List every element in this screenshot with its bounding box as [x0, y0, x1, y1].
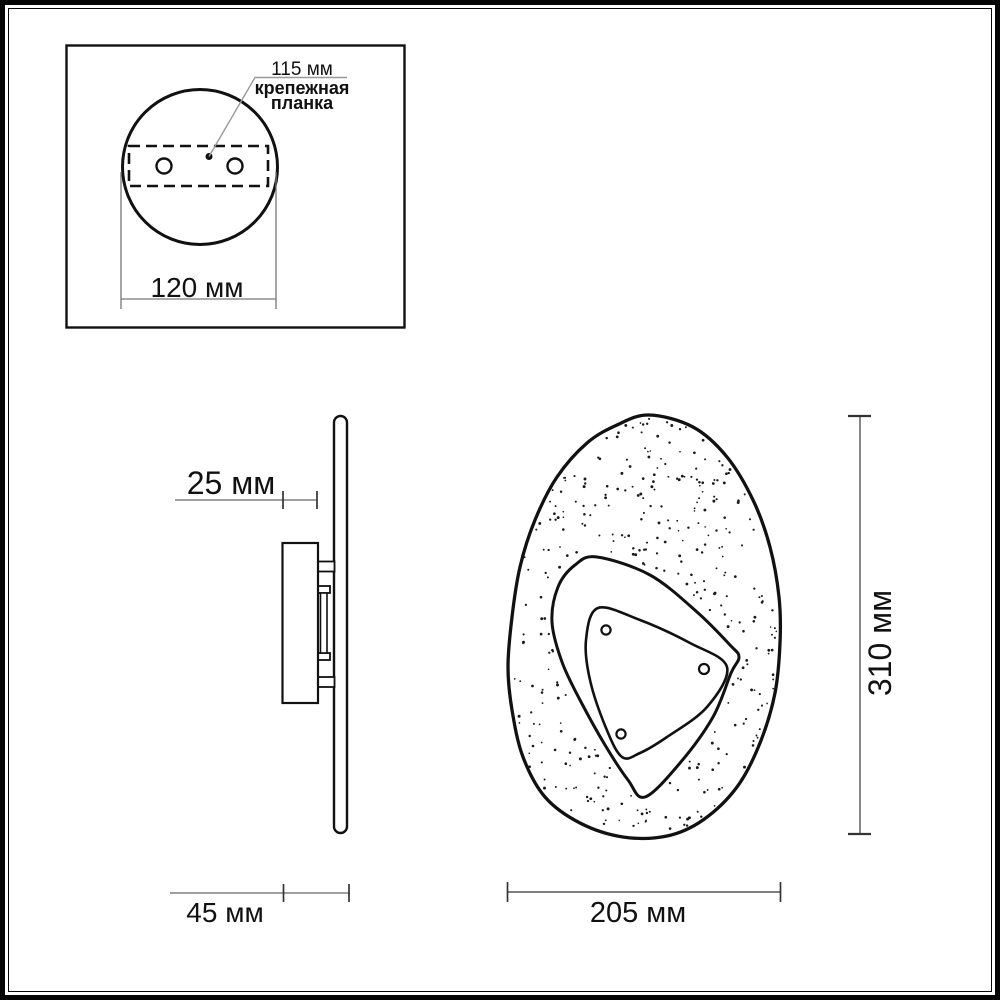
- stipple-dot: [632, 553, 635, 556]
- stipple-dot: [679, 428, 681, 430]
- stipple-dot: [739, 621, 741, 623]
- stipple-dot: [646, 423, 648, 425]
- stipple-dot: [575, 501, 577, 503]
- stipple-dot: [543, 787, 546, 790]
- stipple-dot: [734, 724, 737, 727]
- stipple-dot: [756, 735, 758, 737]
- stipple-dot: [560, 730, 563, 733]
- stipple-dot: [757, 737, 759, 739]
- stipple-dot: [528, 735, 530, 737]
- stipple-dot: [569, 751, 571, 753]
- stipple-dot: [774, 637, 776, 639]
- stipple-dot: [612, 534, 614, 536]
- stipple-dot: [718, 547, 720, 549]
- stipple-dot: [718, 788, 721, 791]
- stipple-dot: [742, 666, 745, 669]
- stipple-dot: [564, 762, 567, 765]
- plate-width-label: 120 мм: [122, 272, 272, 304]
- stipple-dot: [584, 747, 586, 749]
- stipple-dot: [724, 572, 726, 574]
- stipple-dot: [772, 688, 774, 690]
- stipple-dot: [594, 504, 596, 506]
- stipple-dot: [549, 501, 551, 503]
- stipple-dot: [772, 678, 774, 680]
- stipple-dot: [696, 478, 698, 480]
- stipple-dot: [703, 580, 705, 582]
- stipple-dot: [626, 459, 628, 461]
- stipple-dot: [573, 787, 575, 789]
- stipple-dot: [703, 509, 706, 512]
- stipple-dot: [694, 582, 696, 584]
- stipple-dot: [753, 587, 755, 589]
- stipple-dot: [718, 460, 720, 462]
- stipple-dot: [555, 786, 557, 788]
- stipple-dot: [540, 596, 543, 599]
- stipple-dot: [709, 609, 711, 611]
- stipple-dot: [728, 531, 730, 533]
- stipple-dot: [519, 680, 521, 682]
- stipple-dot: [743, 766, 746, 769]
- stipple-dot: [535, 529, 537, 531]
- stipple-dot: [525, 604, 527, 606]
- stipple-dot: [588, 755, 591, 758]
- stipple-dot: [704, 589, 706, 591]
- stipple-dot: [670, 424, 673, 427]
- stipple-dot: [540, 617, 543, 620]
- stipple-dot: [584, 482, 586, 484]
- stipple-dot: [749, 518, 751, 520]
- stipple-dot: [682, 540, 684, 542]
- stipple-dot: [531, 685, 534, 688]
- stipple-dot: [647, 451, 649, 453]
- front-screw-hole-top: [601, 625, 610, 634]
- stipple-dot: [630, 795, 632, 797]
- stipple-dot: [678, 530, 680, 532]
- stipple-dot: [575, 551, 578, 554]
- stipple-dot: [726, 595, 728, 597]
- stipple-dot: [694, 510, 696, 512]
- stipple-dot: [702, 439, 705, 442]
- stipple-dot: [543, 617, 546, 620]
- stipple-dot: [640, 422, 642, 424]
- stipple-dot: [624, 424, 627, 427]
- stipple-dot: [688, 816, 691, 819]
- stipple-dot: [685, 583, 688, 586]
- stipple-dot: [644, 564, 646, 566]
- stipple-dot: [694, 507, 696, 509]
- stipple-dot: [697, 522, 699, 524]
- stipple-dot: [746, 663, 748, 665]
- stipple-dot: [731, 620, 733, 622]
- stipple-dot: [690, 476, 692, 478]
- stipple-dot: [637, 809, 639, 811]
- stipple-dot: [723, 516, 726, 519]
- stipple-dot: [548, 652, 550, 654]
- stipple-dot: [589, 514, 591, 516]
- stipple-dot: [750, 688, 753, 691]
- stipple-dot: [704, 458, 706, 460]
- stipple-dot: [554, 519, 556, 521]
- stipple-dot: [606, 485, 609, 488]
- stipple-dot: [650, 450, 652, 452]
- stipple-dot: [707, 789, 709, 791]
- stipple-dot: [646, 542, 648, 544]
- stipple-dot: [678, 478, 681, 481]
- stipple-dot: [604, 496, 607, 499]
- dimension-drawing: 115 мм крепежная планка 120 мм 25 мм 45 …: [0, 0, 1000, 1000]
- stipple-dot: [669, 782, 671, 784]
- mounting-bracket-label-line2: планка: [227, 96, 377, 111]
- stipple-dot: [704, 543, 706, 545]
- stipple-dot: [632, 427, 634, 429]
- stipple-dot: [768, 653, 770, 655]
- stipple-dot: [649, 505, 651, 507]
- stipple-dot: [551, 649, 554, 652]
- stipple-dot: [711, 768, 714, 771]
- stipple-dot: [624, 489, 626, 491]
- stipple-dot: [587, 800, 589, 802]
- stipple-dot: [656, 435, 659, 438]
- stipple-dot: [734, 575, 737, 578]
- stipple-dot: [708, 535, 710, 537]
- stipple-dot: [548, 668, 550, 670]
- front-screw-hole-bottom: [616, 729, 625, 738]
- stipple-dot: [564, 480, 566, 482]
- stipple-dot: [770, 626, 772, 628]
- stipple-dot: [679, 816, 681, 818]
- stipple-dot: [745, 718, 747, 720]
- stipple-dot: [721, 787, 723, 789]
- stipple-dot: [753, 529, 755, 531]
- driver-box-side-profile: [283, 543, 319, 703]
- stipple-dot: [514, 678, 516, 680]
- stipple-dot: [559, 546, 561, 548]
- stipple-dot: [519, 722, 521, 724]
- stipple-dot: [716, 498, 718, 500]
- stipple-dot: [660, 505, 662, 507]
- stipple-dot: [557, 516, 560, 519]
- stipple-dot: [696, 591, 699, 594]
- stipple-dot: [712, 500, 715, 503]
- stipple-dot: [584, 478, 587, 481]
- stipple-dot: [714, 805, 716, 807]
- stipple-dot: [608, 505, 610, 507]
- stipple-dot: [650, 485, 653, 488]
- stipple-dot: [594, 749, 596, 751]
- width-label: 205 мм: [563, 897, 713, 930]
- mounting-bracket-label: крепежная планка: [227, 81, 377, 111]
- stipple-dot: [655, 567, 658, 570]
- stipple-dot: [761, 595, 763, 597]
- stipple-dot: [698, 497, 700, 499]
- stipple-dot: [632, 825, 634, 827]
- stipple-dot: [563, 516, 565, 518]
- stipple-dot: [728, 472, 730, 474]
- stipple-dot: [553, 512, 556, 515]
- stipple-dot: [681, 475, 684, 478]
- stipple-dot: [667, 519, 669, 521]
- stipple-dot: [560, 722, 562, 724]
- stipple-dot: [699, 485, 701, 487]
- stipple-dot: [640, 518, 643, 521]
- stipple-dot: [680, 560, 682, 562]
- height-label: 310 мм: [862, 568, 902, 718]
- stipple-dot: [676, 520, 678, 522]
- stipple-dot: [666, 421, 668, 423]
- stipple-dot: [583, 485, 586, 488]
- stipple-dot: [539, 724, 541, 726]
- stipple-dot: [583, 513, 586, 516]
- total-depth-label: 45 мм: [150, 897, 300, 929]
- plate-depth-label: 25 мм: [156, 465, 306, 502]
- stipple-dot: [722, 556, 724, 558]
- stipple-dot: [774, 627, 776, 629]
- stipple-dot: [703, 791, 706, 794]
- stipple-dot: [637, 494, 640, 497]
- stipple-dot: [562, 528, 565, 531]
- stipple-dot: [647, 456, 650, 459]
- stipple-dot: [711, 742, 714, 745]
- stipple-dot: [641, 813, 644, 816]
- bracket-stem: [321, 593, 328, 653]
- stipple-dot: [679, 451, 681, 453]
- stipple-dot: [653, 473, 656, 476]
- stipple-dot: [713, 592, 716, 595]
- stipple-dot: [603, 776, 605, 778]
- stipple-dot: [759, 693, 761, 695]
- stipple-dot: [771, 609, 773, 611]
- stipple-dot: [713, 479, 715, 481]
- stipple-dot: [528, 765, 531, 768]
- stipple-dot: [697, 811, 699, 813]
- stipple-dot: [663, 570, 665, 572]
- stipple-dot: [695, 467, 697, 469]
- stipple-dot: [542, 689, 544, 691]
- stipple-dot: [701, 551, 703, 553]
- stipple-dot: [669, 827, 672, 830]
- stipple-dot: [629, 465, 632, 468]
- stipple-dot: [727, 625, 730, 628]
- stipple-dot: [677, 573, 679, 575]
- stipple-dot: [524, 556, 526, 558]
- stipple-dot: [677, 789, 679, 791]
- stipple-dot: [702, 491, 704, 493]
- stipple-dot: [532, 745, 535, 748]
- stipple-dot: [743, 722, 745, 724]
- stipple-dot: [565, 788, 567, 790]
- stipple-dot: [617, 431, 620, 434]
- stipple-dot: [597, 456, 599, 458]
- stipple-dot: [586, 796, 588, 798]
- stipple-dot: [771, 634, 773, 636]
- stipple-dot: [643, 549, 645, 551]
- stipple-dot: [632, 486, 634, 488]
- stipple-dot: [664, 816, 667, 819]
- stipple-dot: [593, 801, 595, 803]
- stipple-dot: [609, 767, 611, 769]
- stipple-dot: [716, 567, 718, 569]
- stipple-dot: [641, 431, 643, 433]
- stipple-dot: [542, 702, 544, 704]
- stipple-dot: [570, 809, 572, 811]
- stipple-dot: [656, 467, 658, 469]
- stipple-dot: [543, 549, 545, 551]
- stipple-dot: [603, 823, 605, 825]
- stipple-dot: [645, 820, 647, 822]
- stipple-dot: [689, 761, 691, 763]
- stipple-dot: [637, 822, 639, 824]
- stipple-dot: [741, 544, 743, 546]
- stipple-dot: [569, 765, 571, 767]
- stipple-dot: [660, 458, 662, 460]
- stipple-dot: [658, 521, 661, 524]
- stipple-dot: [684, 476, 686, 478]
- stipple-dot: [721, 464, 723, 466]
- stipple-dot: [566, 554, 569, 557]
- stipple-dot: [686, 824, 688, 826]
- stipple-dot: [621, 534, 623, 536]
- stipple-dot: [624, 536, 626, 538]
- stipple-dot: [642, 423, 644, 425]
- stipple-dot: [547, 549, 549, 551]
- stipple-dot: [696, 766, 699, 769]
- stipple-dot: [704, 526, 706, 528]
- stipple-dot: [530, 711, 532, 713]
- stipple-dot: [597, 787, 599, 789]
- stipple-dot: [687, 526, 689, 528]
- stipple-dot: [541, 742, 543, 744]
- stipple-dot: [667, 476, 669, 478]
- stipple-dot: [668, 527, 670, 529]
- stipple-dot: [740, 678, 742, 680]
- stipple-dot: [556, 681, 558, 683]
- stipple-dot: [757, 709, 759, 711]
- stipple-dot: [565, 694, 567, 696]
- stipple-dot: [742, 630, 745, 633]
- stipple-dot: [752, 740, 754, 742]
- stipple-dot: [732, 683, 735, 686]
- stipple-dot: [727, 702, 729, 704]
- stipple-dot: [595, 755, 597, 757]
- stipple-dot: [616, 488, 619, 491]
- stipple-dot: [755, 647, 757, 649]
- stipple-dot: [745, 659, 748, 662]
- stipple-dot: [683, 824, 685, 826]
- stipple-dot: [605, 437, 607, 439]
- stipple-dot: [618, 820, 620, 822]
- stipple-dot: [549, 518, 551, 520]
- stipple-dot: [616, 436, 619, 439]
- stipple-dot: [715, 529, 717, 531]
- stipple-dot: [523, 633, 525, 635]
- stipple-dot: [557, 697, 560, 700]
- stipple-dot: [664, 463, 666, 465]
- stipple-dot: [697, 763, 700, 766]
- screw-hole-left: [157, 159, 172, 174]
- glass-panel-side-profile: [334, 416, 347, 833]
- stipple-dot: [656, 552, 658, 554]
- stipple-dot: [723, 574, 725, 576]
- stipple-dot: [518, 715, 521, 718]
- stipple-dot: [668, 441, 670, 443]
- stipple-dot: [639, 493, 642, 496]
- stipple-dot: [573, 738, 576, 741]
- stipple-dot: [544, 779, 546, 781]
- stipple-dot: [547, 576, 549, 578]
- stipple-dot: [645, 808, 647, 810]
- stipple-dot: [772, 673, 775, 676]
- stipple-dot: [602, 809, 604, 811]
- stipple-dot: [527, 569, 529, 571]
- stipple-dot: [744, 493, 746, 495]
- stipple-dot: [713, 496, 715, 498]
- stipple-dot: [649, 811, 651, 813]
- stipple-dot: [541, 761, 543, 763]
- stipple-dot: [538, 522, 541, 525]
- stipple-dot: [528, 752, 530, 754]
- stipple-dot: [627, 534, 630, 537]
- stipple-dot: [644, 447, 646, 449]
- stipple-dot: [634, 553, 637, 556]
- stipple-dot: [541, 691, 544, 694]
- stipple-dot: [693, 451, 696, 454]
- stipple-dot: [701, 481, 704, 484]
- stipple-dot: [540, 633, 543, 636]
- front-view: [507, 415, 871, 902]
- stipple-dot: [700, 597, 702, 599]
- stipple-dot: [573, 475, 575, 477]
- stipple-dot: [721, 546, 723, 548]
- stipple-dot: [758, 596, 760, 598]
- stipple-dot: [712, 482, 715, 485]
- stipple-dot: [714, 731, 716, 733]
- stipple-dot: [767, 649, 770, 652]
- stipple-dot: [598, 534, 600, 536]
- stipple-dot: [642, 477, 645, 480]
- stipple-dot: [556, 684, 559, 687]
- stipple-dot: [533, 723, 535, 725]
- stipple-dot: [602, 795, 604, 797]
- stipple-dot: [720, 604, 722, 606]
- stipple-dot: [761, 601, 764, 604]
- stipple-dot: [605, 789, 607, 791]
- stipple-dot: [729, 468, 732, 471]
- stipple-dot: [548, 633, 550, 635]
- stipple-dot: [558, 566, 561, 569]
- stipple-dot: [700, 815, 702, 817]
- stipple-dot: [737, 499, 740, 502]
- stipple-dot: [753, 620, 756, 623]
- stipple-dot: [652, 480, 655, 483]
- stipple-dot: [604, 494, 606, 496]
- stipple-dot: [560, 490, 562, 492]
- stipple-dot: [605, 819, 607, 821]
- stipple-dot: [522, 642, 524, 644]
- standoff-bottom: [318, 677, 335, 687]
- stipple-dot: [724, 613, 726, 615]
- stipple-dot: [726, 753, 728, 755]
- stipple-dot: [696, 501, 698, 503]
- stipple-dot: [752, 744, 755, 747]
- stipple-dot: [606, 776, 608, 778]
- stipple-dot: [582, 505, 584, 507]
- stipple-dot: [613, 540, 615, 542]
- stipple-dot: [690, 574, 693, 577]
- stipple-dot: [552, 489, 554, 491]
- stipple-dot: [725, 528, 727, 530]
- stipple-dot: [698, 481, 701, 484]
- stipple-dot: [643, 512, 645, 514]
